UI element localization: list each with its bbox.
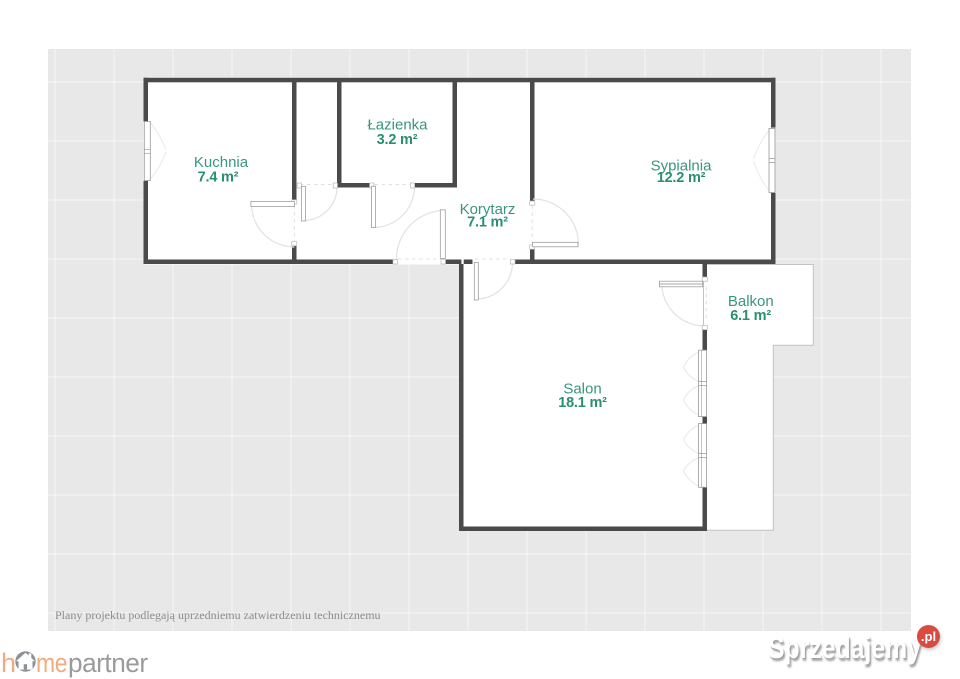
svg-text:18.1 m²: 18.1 m² (558, 395, 607, 411)
svg-text:7.1 m²: 7.1 m² (467, 215, 508, 231)
svg-text:3.2 m²: 3.2 m² (377, 132, 418, 148)
svg-text:12.2 m²: 12.2 m² (657, 170, 706, 186)
svg-text:7.4 m²: 7.4 m² (198, 169, 239, 185)
svg-text:6.1 m²: 6.1 m² (730, 308, 771, 324)
